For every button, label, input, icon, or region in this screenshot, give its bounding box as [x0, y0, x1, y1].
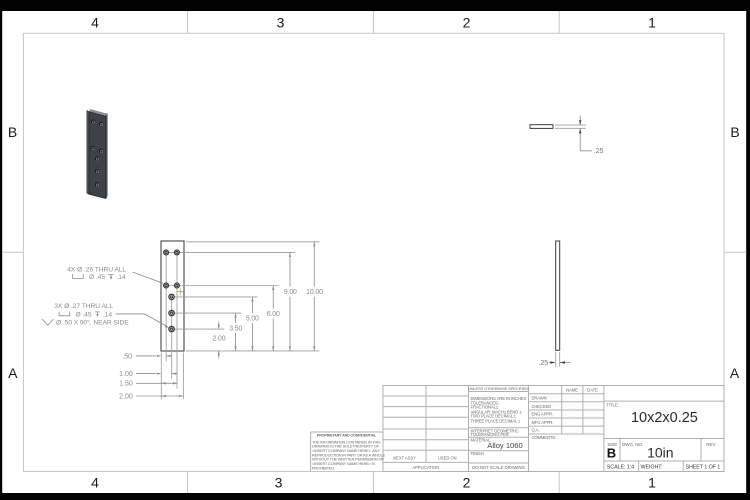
svg-text:B: B — [730, 124, 739, 140]
svg-text:3: 3 — [275, 475, 283, 491]
svg-text:SCALE: 1:4: SCALE: 1:4 — [607, 464, 634, 470]
svg-text:.25: .25 — [538, 360, 548, 367]
svg-text:MFG APPR.: MFG APPR. — [532, 420, 554, 425]
svg-text:1.50: 1.50 — [119, 381, 133, 388]
svg-text:Alloy 1060: Alloy 1060 — [487, 441, 522, 450]
svg-text:CHECKED: CHECKED — [532, 404, 552, 409]
svg-text:.14: .14 — [103, 311, 112, 318]
svg-text:B: B — [607, 446, 616, 461]
svg-text:3.50: 3.50 — [229, 325, 242, 332]
svg-text:DO NOT SCALE DRAWING: DO NOT SCALE DRAWING — [472, 465, 525, 470]
svg-text:10in: 10in — [647, 445, 673, 461]
svg-text:3: 3 — [277, 15, 285, 31]
svg-text:6.00: 6.00 — [267, 311, 280, 318]
svg-text:1: 1 — [648, 15, 656, 31]
svg-text:TOLERANCING PER:: TOLERANCING PER: — [471, 432, 510, 437]
svg-text:USED ON: USED ON — [438, 455, 457, 460]
svg-text:A: A — [8, 365, 18, 381]
svg-text:4: 4 — [91, 475, 99, 491]
svg-text:THREE PLACE DECIMAL ±: THREE PLACE DECIMAL ± — [471, 419, 521, 424]
svg-text:2.00: 2.00 — [119, 393, 133, 400]
svg-text:Ø .45: Ø .45 — [76, 311, 92, 318]
svg-text:APPLICATION: APPLICATION — [412, 465, 439, 470]
svg-text:SHEET 1 OF 1: SHEET 1 OF 1 — [686, 464, 721, 470]
svg-text:9.00: 9.00 — [284, 289, 297, 296]
svg-text:B: B — [8, 124, 17, 140]
svg-text:4: 4 — [91, 15, 99, 31]
svg-text:4X Ø .26 THRU ALL: 4X Ø .26 THRU ALL — [67, 266, 126, 273]
svg-text:A: A — [730, 365, 740, 381]
svg-text:5.00: 5.00 — [246, 315, 259, 322]
svg-text:PROPRIETARY AND CONFIDENTIAL: PROPRIETARY AND CONFIDENTIAL — [317, 433, 377, 437]
svg-text:ENG APPR.: ENG APPR. — [532, 411, 554, 416]
svg-text:.50: .50 — [122, 353, 132, 360]
svg-text:DATE: DATE — [587, 387, 598, 392]
svg-text:COMMENTS:: COMMENTS: — [532, 435, 557, 440]
svg-text:2: 2 — [463, 475, 471, 491]
svg-text:DRAWN: DRAWN — [532, 395, 547, 400]
svg-text:.25: .25 — [594, 148, 604, 155]
svg-text:.14: .14 — [117, 274, 126, 281]
svg-text:NAME: NAME — [566, 387, 578, 392]
svg-text:2: 2 — [463, 15, 471, 31]
svg-text:UNLESS OTHERWISE SPECIFIED:: UNLESS OTHERWISE SPECIFIED: — [468, 386, 529, 391]
svg-text:WEIGHT:: WEIGHT: — [641, 464, 663, 470]
svg-text:1: 1 — [648, 475, 656, 491]
svg-text:NEXT ASSY: NEXT ASSY — [393, 455, 416, 460]
svg-text:10.00: 10.00 — [306, 289, 323, 296]
svg-text:PROHIBITED.: PROHIBITED. — [312, 465, 335, 470]
svg-text:Q.A.: Q.A. — [532, 428, 540, 433]
svg-text:10x2x0.25: 10x2x0.25 — [631, 410, 698, 426]
svg-text:Ø .50 X 90°, NEAR SIDE: Ø .50 X 90°, NEAR SIDE — [56, 319, 129, 327]
svg-text:DWG. NO.: DWG. NO. — [622, 442, 643, 447]
svg-text:REV: REV — [706, 442, 716, 447]
svg-text:TITLE:: TITLE: — [606, 402, 619, 407]
svg-text:1.00: 1.00 — [119, 371, 133, 378]
svg-text:Ø .45: Ø .45 — [89, 274, 105, 281]
svg-text:2.00: 2.00 — [213, 336, 226, 343]
svg-text:FINISH: FINISH — [471, 451, 484, 456]
svg-text:3X Ø .27 THRU ALL: 3X Ø .27 THRU ALL — [54, 303, 113, 310]
